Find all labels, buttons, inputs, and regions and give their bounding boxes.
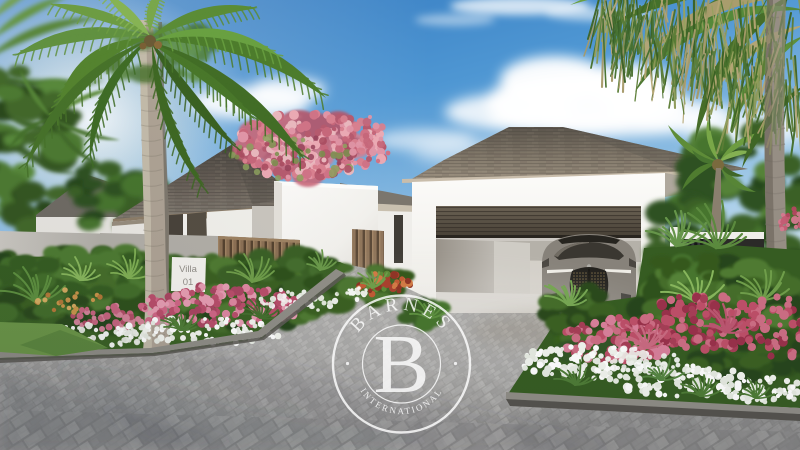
svg-text:B: B: [373, 318, 429, 411]
